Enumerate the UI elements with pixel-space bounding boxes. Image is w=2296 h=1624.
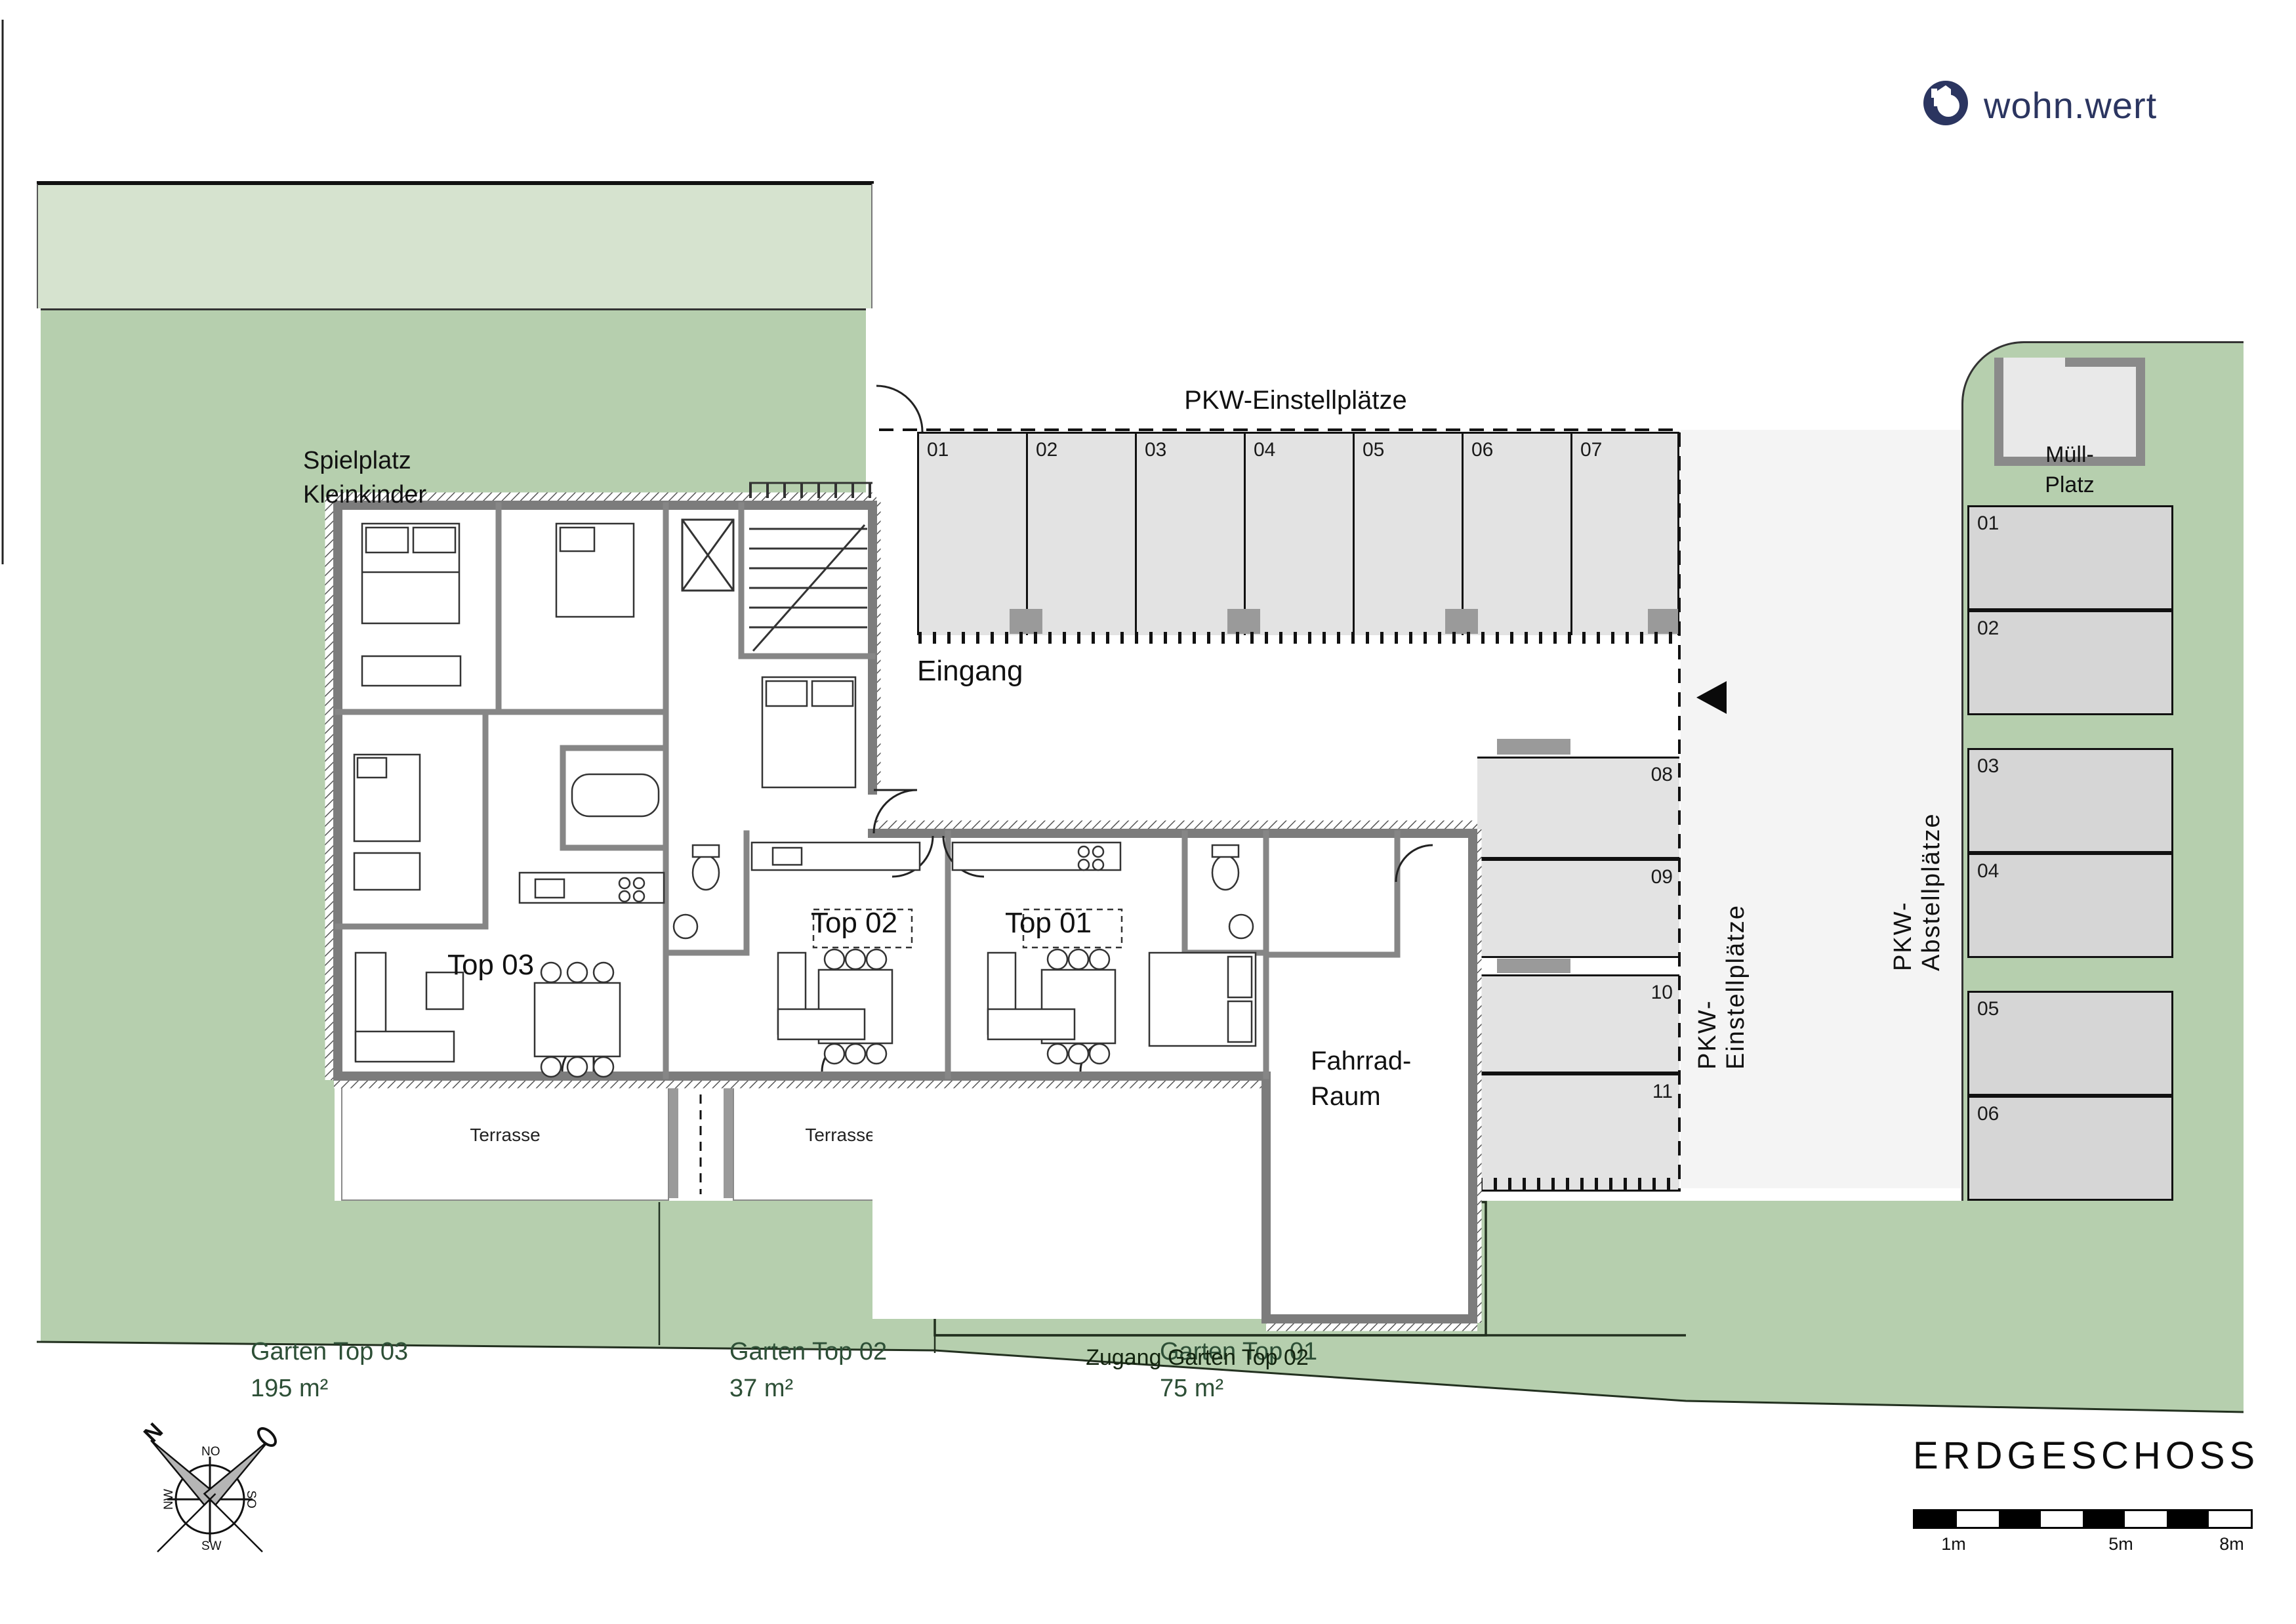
scale-seg	[2041, 1511, 2083, 1527]
floor-title: ERDGESCHOSS	[1913, 1434, 2259, 1478]
scale-seg	[2167, 1511, 2209, 1527]
bike-room-label: Fahrrad-Raum	[1311, 972, 1411, 1185]
site-plan-sheet: 01 02 03 04 05 06 07 08 09 10 11 01 02 0…	[0, 0, 2296, 1624]
scale-seg	[2125, 1511, 2167, 1527]
scale-seg	[2209, 1511, 2251, 1527]
compass-nw-label: NW	[162, 1489, 176, 1510]
compass-sw-label: SW	[201, 1539, 222, 1553]
apartment-label-top01: Top 01	[989, 907, 1107, 940]
entrance-label: Eingang	[917, 655, 1023, 688]
elevator	[682, 520, 733, 591]
brand-name: wohn.wert	[1984, 84, 2157, 127]
outdoor-label-vertical: PKW-Abstellplätze	[1889, 755, 1946, 971]
scale-bar	[1913, 1509, 2253, 1529]
scale-seg	[1999, 1511, 2041, 1527]
brand-logo: wohn.wert	[1975, 84, 2157, 127]
playground-label: SpielplatzKleinkinder	[303, 375, 426, 580]
compass-se-label: SO	[244, 1490, 258, 1508]
logo-icon	[1923, 81, 1968, 125]
scale-seg	[2083, 1511, 2125, 1527]
carports-title: PKW-Einstellplätze	[1115, 386, 1476, 415]
waste-label: Müll-Platz	[2002, 379, 2137, 560]
entrance-arrow-icon	[1696, 681, 1727, 714]
scale-mark-1m: 1m	[1914, 1534, 1993, 1554]
apartment-label-top03: Top 03	[432, 949, 550, 982]
lane-label-vertical: PKW-Einstellplätze	[1694, 860, 1750, 1070]
garden-label-top02: Garten Top 0237 m²	[729, 1260, 887, 1480]
scale-seg	[1915, 1511, 1957, 1527]
garden-label-top03: Garten Top 03195 m²	[251, 1260, 408, 1480]
apartment-label-top02: Top 02	[795, 907, 913, 940]
compass-ne-label: NO	[201, 1445, 220, 1459]
scale-mark-5m: 5m	[2081, 1534, 2160, 1554]
scale-seg	[1957, 1511, 1999, 1527]
scale-mark-8m: 8m	[2192, 1534, 2271, 1554]
garden-access-label: Zugang Garten Top 02	[1059, 1345, 1335, 1371]
